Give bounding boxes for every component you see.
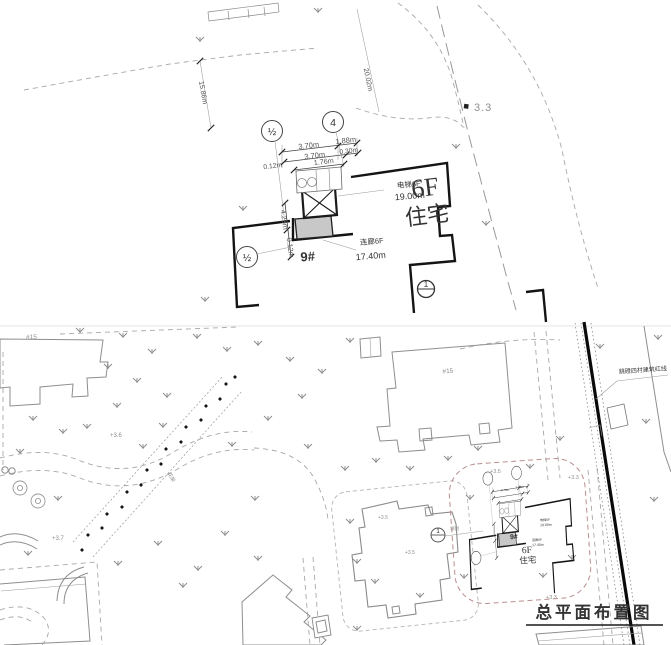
- road-centerline: [437, 6, 516, 310]
- gate-structure: [607, 404, 628, 429]
- building-corner-fragment: [526, 290, 546, 322]
- drawing-title: 总平面布置图: [536, 602, 653, 622]
- dim-label: 3.70m: [298, 140, 320, 151]
- grass-icon: [482, 221, 490, 226]
- lobby-room: [296, 167, 342, 193]
- grass-icon: [239, 206, 247, 211]
- dim-west: 15.86m: [197, 58, 214, 131]
- spot-elevation-label: +3.3: [568, 475, 579, 481]
- dim-label: 4.25m: [279, 209, 291, 230]
- existing-building-south: +3.5 +3.5: [330, 479, 480, 632]
- spot-elevation-3-3: 3.3: [464, 102, 493, 114]
- cut-building-top: [208, 3, 279, 21]
- existing-building-15b: #15: [360, 337, 512, 452]
- pergola-label: 花架: [166, 471, 177, 483]
- axis-bubble-c-label: ½: [243, 253, 252, 264]
- tree-icon: [13, 481, 27, 495]
- detail-reference-number: 1: [424, 280, 429, 289]
- corridor-label: 连廊6F: [359, 235, 384, 247]
- plan-svg: 15.86m 20.02m 3.3: [0, 0, 671, 645]
- use-label: 住宅: [404, 200, 451, 230]
- grass-icon: [452, 144, 460, 149]
- drawing-title-block: 总平面布置图: [526, 602, 663, 625]
- building-number: 9#: [300, 248, 316, 264]
- building-15a-label: #15: [26, 334, 37, 341]
- axis-bubble-b-label: 4: [330, 117, 336, 129]
- mini-corridor-elevation: 17.40m: [532, 543, 544, 548]
- spot-elevation-label: +3.5: [378, 515, 388, 521]
- mini-elevator-label: 电梯6F: [540, 517, 550, 523]
- floors-label: 6F: [410, 171, 441, 203]
- grass-icon: [314, 8, 322, 13]
- mini-use-label: 住宅: [519, 555, 537, 566]
- small-structure: [312, 615, 331, 638]
- tree-icon: [31, 494, 45, 508]
- building-15b-label: #15: [442, 368, 454, 376]
- dim-label: 0.12m: [263, 162, 283, 171]
- site-plan: 跳磴四村建筑红线 #15 #15 +3.5 +3.5: [0, 322, 671, 645]
- dim-west-label: 15.86m: [197, 81, 208, 105]
- stair-hatch: [295, 216, 333, 239]
- spot-elevation-label: +3.5: [405, 550, 415, 556]
- red-line-label: 跳磴四村建筑红线: [619, 364, 667, 375]
- corridor-elevation: 17.40m: [355, 250, 386, 263]
- building-outline: [352, 501, 458, 618]
- axis-bubble-a-label: ½: [268, 127, 277, 138]
- mini-dim-label: 3.70m: [501, 488, 510, 492]
- mini-building-number: 9#: [510, 534, 518, 541]
- spot-marker-icon: [464, 104, 469, 109]
- drawing-canvas: 15.86m 20.02m 3.3: [0, 0, 671, 645]
- mini-elevator-elevation: 19.00m: [540, 523, 552, 528]
- dim-label: 0.12m: [285, 237, 297, 258]
- site-detail-reference-number: 1: [436, 528, 440, 535]
- spot-elevation-label: +3.3: [546, 595, 557, 601]
- dim-north: 20.02m: [357, 9, 379, 112]
- mini-corridor-label: 连廊6F: [532, 537, 542, 543]
- grass-icon: [201, 297, 209, 302]
- site-detail-reference-label: 详图: [450, 525, 459, 532]
- spot-elevation-label: 3.3: [474, 102, 492, 114]
- elevator-shaft-icon: [302, 188, 337, 218]
- site-grass: [16, 328, 662, 631]
- existing-building-15a: #15: [0, 334, 108, 406]
- detail-reference-bubble: 1: [417, 280, 435, 298]
- spot-elevation-label: +3.6: [110, 433, 123, 439]
- dim-north-label: 20.02m: [362, 68, 374, 92]
- spot-elevation-label: +3.7: [52, 536, 65, 542]
- grass-icon: [196, 37, 204, 42]
- detail-plan: 15.86m 20.02m 3.3: [24, 3, 598, 322]
- mini-dim-label: 1.88m: [516, 485, 525, 489]
- dim-label: 1.88m: [335, 135, 357, 146]
